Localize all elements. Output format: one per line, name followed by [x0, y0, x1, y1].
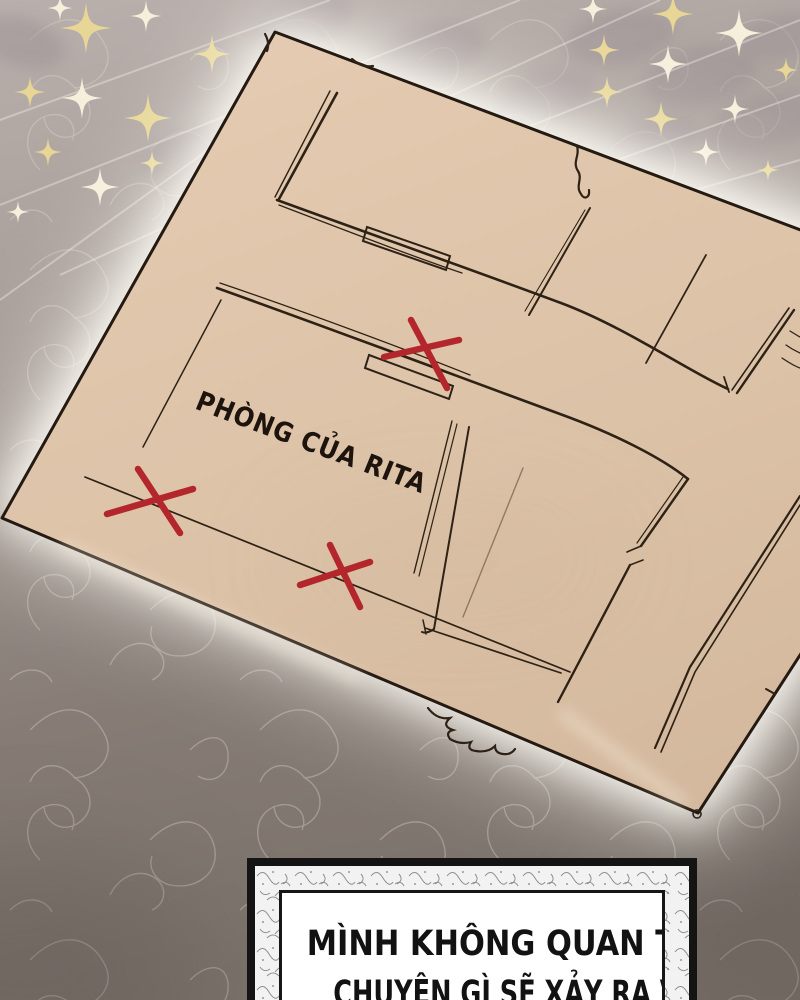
caption-text-box: MÌNH KHÔNG QUAN TÂM CHUYỆN GÌ SẼ XẢY RA …	[279, 890, 665, 1000]
caption-panel: MÌNH KHÔNG QUAN TÂM CHUYỆN GÌ SẼ XẢY RA …	[247, 858, 697, 1000]
caption-line-1: MÌNH KHÔNG QUAN TÂM	[307, 919, 638, 969]
caption-line-2: CHUYỆN GÌ SẼ XẢY RA VỚI	[333, 969, 610, 1000]
comic-panel: PHÒNG CỦA RITA	[0, 0, 800, 1000]
caption-marble-frame: MÌNH KHÔNG QUAN TÂM CHUYỆN GÌ SẼ XẢY RA …	[255, 866, 689, 1000]
scene-artwork	[0, 0, 800, 1000]
